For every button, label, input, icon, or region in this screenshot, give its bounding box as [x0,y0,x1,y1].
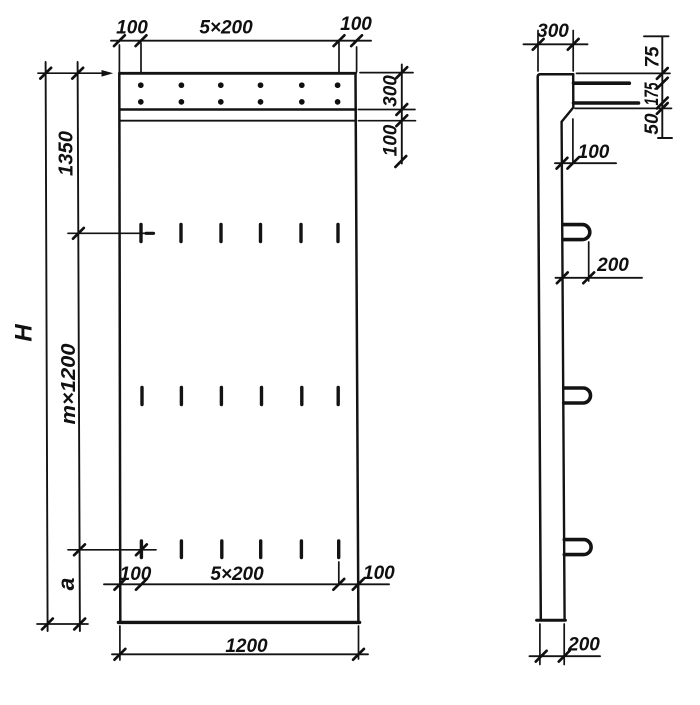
svg-text:1350: 1350 [56,131,78,176]
svg-text:5×200: 5×200 [199,18,253,39]
svg-text:m×1200: m×1200 [58,344,80,425]
svg-text:100: 100 [363,563,395,584]
svg-text:100: 100 [120,564,152,585]
svg-text:100: 100 [116,18,148,39]
svg-text:H: H [11,324,38,342]
svg-text:200: 200 [567,635,600,656]
svg-text:75: 75 [643,46,664,68]
svg-text:175: 175 [642,82,663,105]
svg-text:5×200: 5×200 [210,564,264,585]
svg-text:a: a [53,577,79,590]
svg-text:200: 200 [596,255,629,276]
svg-text:1200: 1200 [225,636,268,657]
svg-text:300: 300 [537,21,569,42]
svg-text:50: 50 [642,113,663,135]
svg-text:100: 100 [381,124,402,156]
svg-text:300: 300 [381,75,402,107]
svg-text:100: 100 [578,142,610,163]
svg-text:100: 100 [340,14,372,35]
